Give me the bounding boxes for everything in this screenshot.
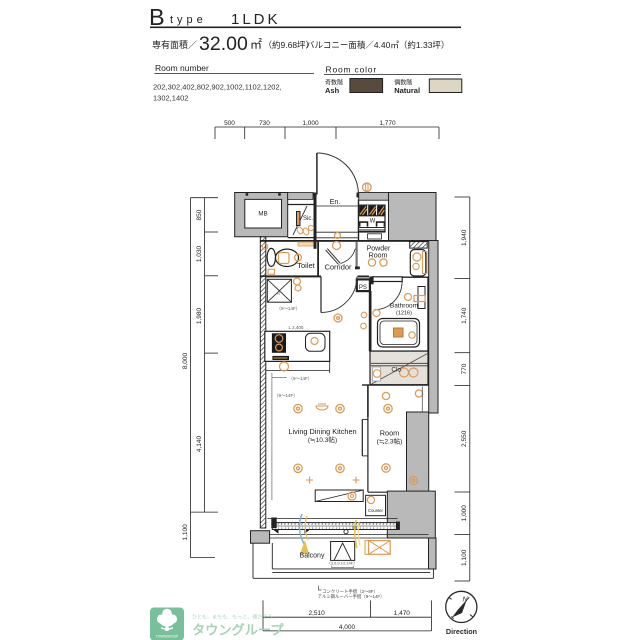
svg-text:L 2,400: L 2,400 — [289, 325, 304, 330]
svg-text:㎡: ㎡ — [250, 38, 262, 52]
svg-text:Bathroom: Bathroom — [390, 303, 418, 310]
svg-text:1LDK: 1LDK — [231, 11, 281, 28]
svg-text:（9〜14F）: （9〜14F） — [277, 306, 301, 311]
svg-text:(≒10.3帖): (≒10.3帖) — [308, 435, 337, 444]
svg-text:Living Dining Kitchen: Living Dining Kitchen — [288, 427, 356, 436]
svg-text:Natural: Natural — [394, 86, 420, 95]
svg-text:1,000: 1,000 — [461, 505, 468, 522]
svg-text:(≒2.3帖): (≒2.3帖) — [377, 437, 403, 446]
svg-text:8,000: 8,000 — [182, 352, 189, 369]
svg-text:Corridor: Corridor — [324, 263, 352, 272]
svg-text:FB: FB — [352, 525, 357, 530]
svg-text:タウングループ: タウングループ — [192, 622, 284, 638]
svg-text:1,740: 1,740 — [461, 307, 468, 324]
svg-text:202,302,402,802,902,1002,1102,: 202,302,402,802,902,1002,1102,1202, — [153, 83, 282, 92]
svg-text:W: W — [370, 219, 376, 225]
svg-text:（3,6,9,12,14F）: （3,6,9,12,14F） — [327, 561, 357, 566]
svg-text:1,940: 1,940 — [461, 229, 468, 246]
svg-text:Powder: Powder — [367, 246, 391, 253]
svg-text:Room: Room — [380, 429, 399, 438]
svg-text:1,980: 1,980 — [196, 307, 203, 324]
svg-text:Balcony: Balcony — [300, 553, 325, 560]
svg-text:（9〜14F）: （9〜14F） — [274, 393, 298, 398]
svg-text:Ash: Ash — [325, 86, 340, 95]
svg-text:バルコニー面積／4.40㎡（約1.33坪）: バルコニー面積／4.40㎡（約1.33坪） — [306, 40, 449, 50]
svg-text:1,770: 1,770 — [379, 120, 396, 127]
svg-text:Room: Room — [369, 253, 388, 260]
svg-text:770: 770 — [461, 363, 468, 374]
svg-text:Room number: Room number — [155, 63, 209, 73]
svg-text:Toilet: Toilet — [297, 261, 315, 270]
svg-text:2,510: 2,510 — [308, 610, 325, 617]
svg-text:B: B — [149, 4, 165, 30]
svg-text:Room color: Room color — [326, 65, 377, 75]
svg-text:4,000: 4,000 — [339, 624, 356, 631]
svg-text:1,000: 1,000 — [302, 120, 319, 127]
svg-text:En.: En. — [330, 197, 341, 206]
svg-text:1,100: 1,100 — [461, 549, 468, 566]
svg-text:(1216): (1216) — [396, 311, 412, 317]
svg-text:Clo.: Clo. — [391, 367, 402, 374]
svg-text:500: 500 — [224, 120, 235, 127]
svg-text:アルミ鋼ルーバー手摺（9〜14F）: アルミ鋼ルーバー手摺（9〜14F） — [318, 593, 385, 600]
svg-text:ひとも、まちも、もっと、輝かそう。: ひとも、まちも、もっと、輝かそう。 — [192, 614, 278, 621]
svg-text:1,470: 1,470 — [394, 610, 411, 617]
svg-text:Counter: Counter — [368, 508, 384, 513]
svg-text:1,030: 1,030 — [196, 245, 203, 262]
svg-text:type: type — [170, 14, 207, 26]
svg-text:1,100: 1,100 — [182, 524, 189, 541]
svg-text:専有面積／: 専有面積／ — [152, 39, 197, 50]
svg-text:Sic.: Sic. — [303, 216, 313, 222]
svg-text:730: 730 — [259, 120, 270, 127]
svg-text:（9〜14F）: （9〜14F） — [289, 376, 313, 381]
svg-text:MB: MB — [258, 211, 267, 218]
svg-text:32.00: 32.00 — [199, 33, 248, 55]
svg-text:Direction: Direction — [446, 627, 477, 636]
svg-text:2,550: 2,550 — [461, 430, 468, 447]
svg-text:1302,1402: 1302,1402 — [153, 94, 188, 103]
svg-text:850: 850 — [196, 209, 203, 220]
svg-text:PS: PS — [359, 285, 367, 291]
svg-text:4,140: 4,140 — [196, 435, 203, 452]
svg-text:TOWNGROUP: TOWNGROUP — [156, 635, 179, 639]
